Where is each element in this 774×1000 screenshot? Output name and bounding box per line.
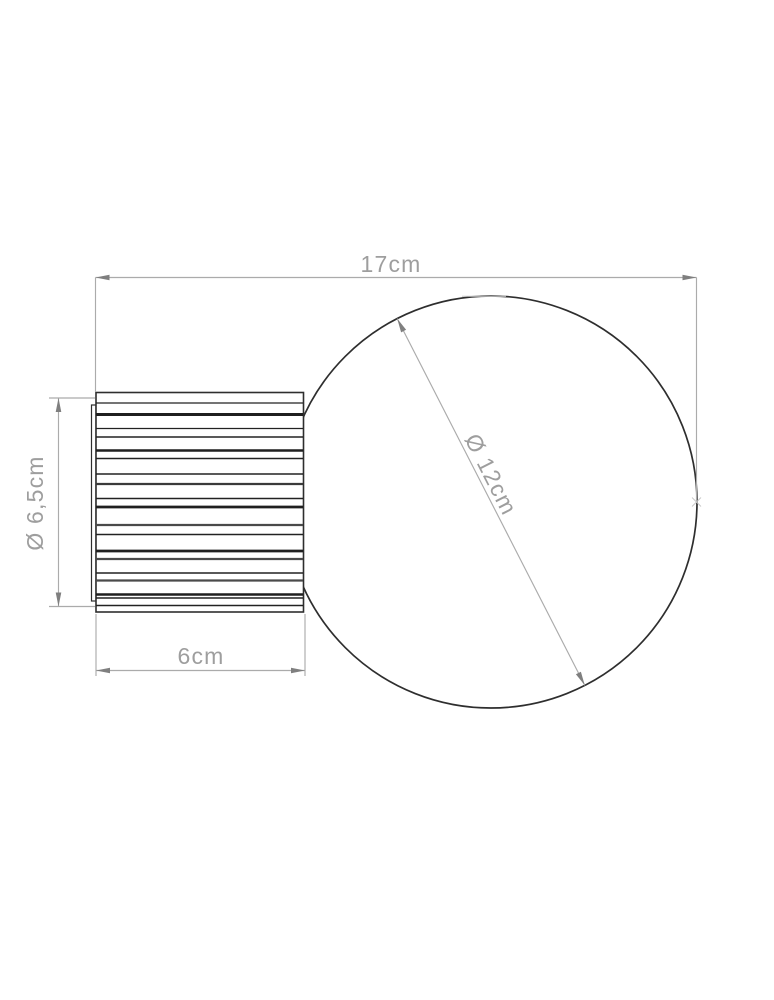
arrowhead-right xyxy=(683,275,697,281)
arrowhead-left xyxy=(96,275,110,281)
arrowhead-top xyxy=(397,319,406,333)
arrowhead-top xyxy=(56,398,62,412)
overall-width-label: 17cm xyxy=(360,251,421,277)
lamp-dimension-drawing: 17cm Ø 6,5cm 6cm Ø 12cm xyxy=(0,0,774,1000)
base-diameter-label: Ø 6,5cm xyxy=(22,455,48,550)
dimension-base-depth: 6cm xyxy=(96,614,305,676)
sphere-diameter-label: Ø 12cm xyxy=(460,429,523,519)
dimension-sphere-diameter: Ø 12cm xyxy=(397,319,585,686)
technical-drawing-page: 17cm Ø 6,5cm 6cm Ø 12cm xyxy=(0,0,774,1000)
arrowhead-left xyxy=(96,668,110,674)
dimension-base-diameter: Ø 6,5cm xyxy=(22,398,95,607)
arrowhead-bottom xyxy=(56,593,62,607)
base xyxy=(92,393,304,613)
arrowhead-bottom xyxy=(576,672,585,686)
arrowhead-right xyxy=(291,668,305,674)
base-body xyxy=(96,393,304,613)
base-depth-label: 6cm xyxy=(177,643,224,669)
